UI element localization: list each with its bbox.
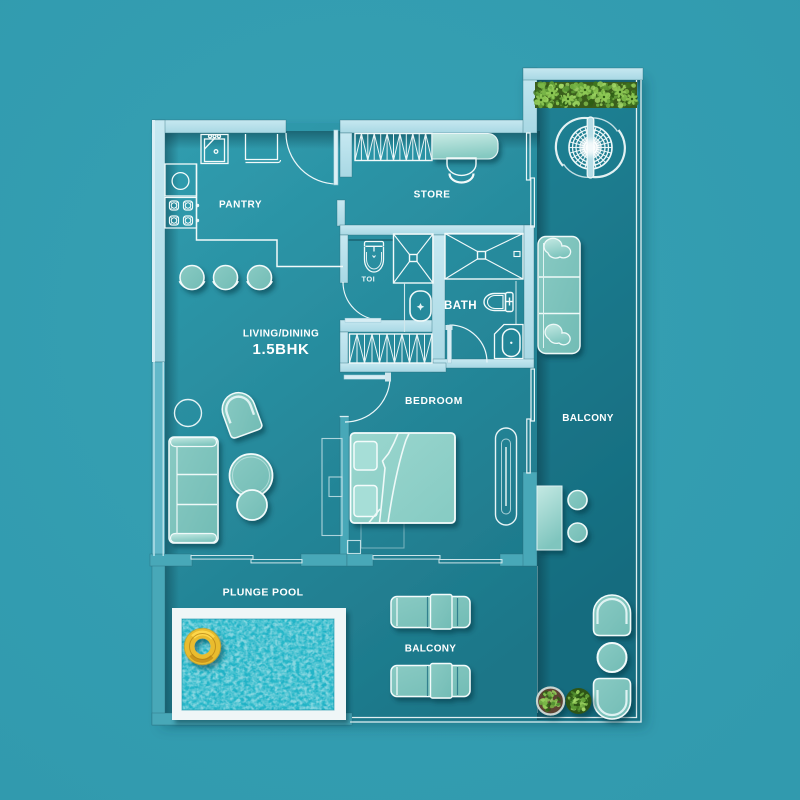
svg-text:STORE: STORE	[414, 190, 451, 201]
svg-text:PANTRY: PANTRY	[219, 200, 262, 211]
svg-text:PLUNGE POOL: PLUNGE POOL	[223, 587, 304, 599]
svg-text:BATH: BATH	[444, 300, 477, 312]
svg-text:1.5BHK: 1.5BHK	[253, 341, 310, 358]
svg-text:LIVING/DINING: LIVING/DINING	[243, 329, 319, 340]
svg-text:BALCONY: BALCONY	[562, 413, 614, 424]
svg-text:TOI: TOI	[362, 275, 376, 284]
svg-text:BALCONY: BALCONY	[405, 644, 457, 655]
svg-text:BEDROOM: BEDROOM	[405, 396, 463, 407]
